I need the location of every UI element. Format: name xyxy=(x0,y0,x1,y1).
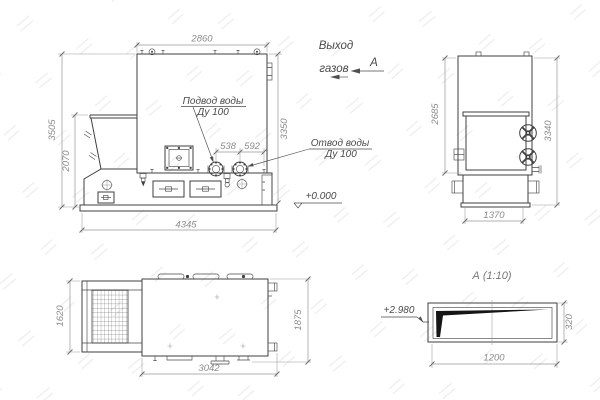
dim-label-320: 320 xyxy=(564,313,575,330)
dim-label-2685: 2685 xyxy=(430,103,441,126)
watermark-texture xyxy=(0,0,600,400)
dim-label-1200: 1200 xyxy=(483,353,505,364)
water-supply-label-line2: Ду 100 xyxy=(196,107,229,118)
drawing-canvas: 2860 3505 2070 4345 3350 xyxy=(0,0,600,400)
dim-label-2070: 2070 xyxy=(61,150,72,173)
elevation-section-label: +2.980 xyxy=(384,305,415,316)
section-mark-label: А xyxy=(369,57,378,69)
dim-label-538: 538 xyxy=(220,141,237,152)
dim-label-1370: 1370 xyxy=(483,210,505,221)
section-title: А (1:10) xyxy=(471,270,511,282)
gas-outlet-label-line1: Выход xyxy=(319,40,354,52)
boiler-technical-drawing: 2860 3505 2070 4345 3350 xyxy=(0,0,600,400)
dim-label-3350: 3350 xyxy=(279,118,290,140)
gas-outlet-label-line2: газов xyxy=(319,63,348,75)
dim-label-1875: 1875 xyxy=(293,309,304,331)
grate-mesh xyxy=(92,290,128,343)
dim-label-2860: 2860 xyxy=(190,34,213,45)
inspection-door xyxy=(165,146,193,170)
elevation-zero-label: +0.000 xyxy=(306,191,337,202)
water-supply-label-line1: Подвод воды xyxy=(183,96,244,107)
dim-label-592: 592 xyxy=(244,141,261,152)
dim-label-3505: 3505 xyxy=(47,119,58,141)
dim-label-3340: 3340 xyxy=(543,120,554,142)
dim-label-1620: 1620 xyxy=(55,305,66,327)
water-return-label-line1: Отвод воды xyxy=(311,138,370,149)
dim-label-4345: 4345 xyxy=(175,220,197,231)
water-return-label-line2: Ду 100 xyxy=(324,149,357,160)
dim-label-3042: 3042 xyxy=(198,363,220,374)
